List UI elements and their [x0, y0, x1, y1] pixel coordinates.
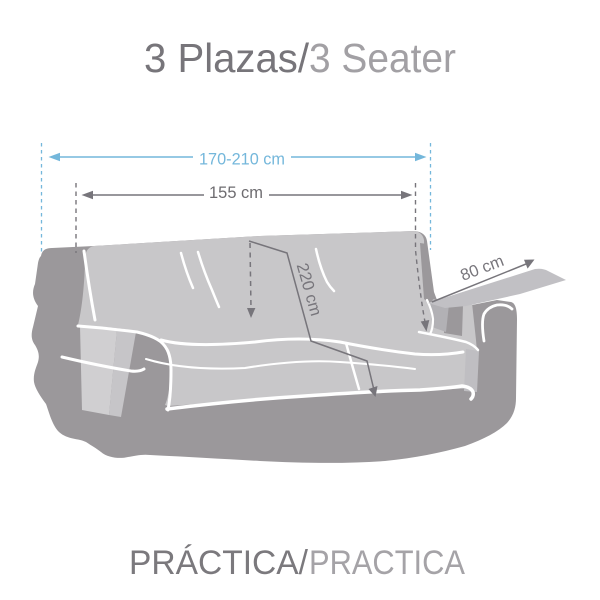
svg-text:155 cm: 155 cm	[209, 184, 263, 202]
svg-text:PRACTICA: PRACTICA	[309, 544, 465, 582]
svg-text:80 cm: 80 cm	[458, 252, 506, 285]
svg-text:3 Seater: 3 Seater	[309, 35, 456, 81]
svg-text:3 Plazas/: 3 Plazas/	[144, 35, 310, 81]
svg-text:170-210 cm: 170-210 cm	[199, 151, 285, 169]
svg-text:PRÁCTICA/: PRÁCTICA/	[129, 544, 309, 582]
